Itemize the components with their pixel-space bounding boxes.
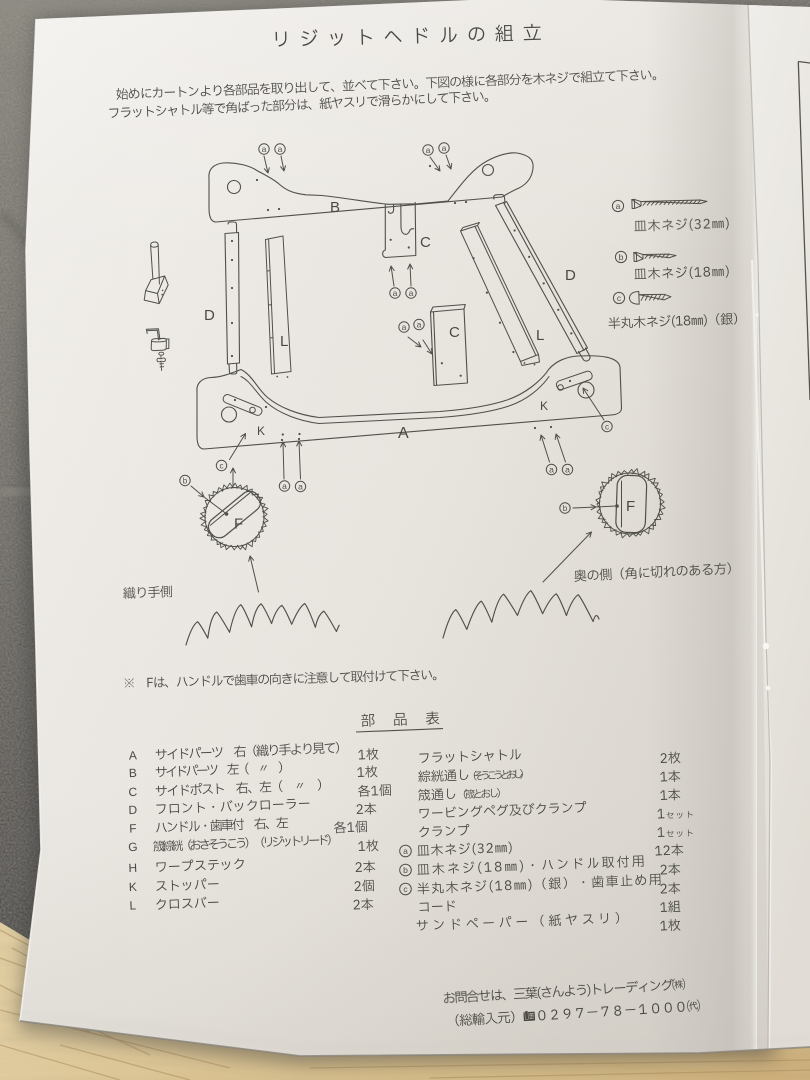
- svg-text:D: D: [204, 307, 215, 324]
- svg-text:F: F: [234, 516, 243, 533]
- svg-text:a: a: [278, 144, 283, 154]
- svg-text:A: A: [129, 748, 138, 762]
- svg-text:a: a: [282, 481, 287, 491]
- svg-text:K: K: [257, 424, 265, 438]
- svg-text:b: b: [563, 504, 568, 513]
- svg-text:a: a: [442, 143, 447, 153]
- svg-text:a: a: [262, 144, 267, 154]
- svg-text:c: c: [220, 461, 224, 470]
- svg-text:b: b: [403, 865, 408, 875]
- svg-text:a: a: [402, 322, 407, 332]
- svg-text:B: B: [330, 199, 340, 216]
- svg-text:D: D: [128, 803, 138, 817]
- svg-text:K: K: [129, 880, 138, 894]
- svg-text:a: a: [565, 465, 570, 475]
- svg-text:K: K: [540, 399, 548, 413]
- svg-text:C: C: [128, 785, 138, 799]
- svg-text:a: a: [426, 145, 431, 155]
- svg-text:L: L: [280, 333, 288, 350]
- svg-text:B: B: [129, 766, 138, 780]
- svg-text:b: b: [619, 252, 624, 262]
- svg-text:a: a: [403, 846, 408, 856]
- svg-text:c: c: [605, 422, 609, 431]
- svg-text:b: b: [183, 476, 188, 485]
- svg-text:F: F: [626, 498, 635, 515]
- svg-text:a: a: [616, 201, 621, 211]
- svg-text:H: H: [128, 861, 137, 875]
- svg-text:a: a: [298, 482, 303, 492]
- svg-text:C: C: [449, 324, 460, 341]
- svg-text:a: a: [393, 288, 398, 298]
- svg-text:L: L: [129, 898, 137, 912]
- svg-text:F: F: [129, 821, 137, 835]
- svg-text:A: A: [398, 425, 409, 442]
- svg-text:a: a: [409, 288, 414, 298]
- svg-text:C: C: [420, 234, 431, 251]
- svg-text:G: G: [128, 840, 138, 854]
- svg-text:D: D: [565, 267, 576, 284]
- svg-text:L: L: [536, 327, 544, 344]
- svg-text:a: a: [549, 465, 554, 475]
- svg-text:a: a: [417, 320, 422, 330]
